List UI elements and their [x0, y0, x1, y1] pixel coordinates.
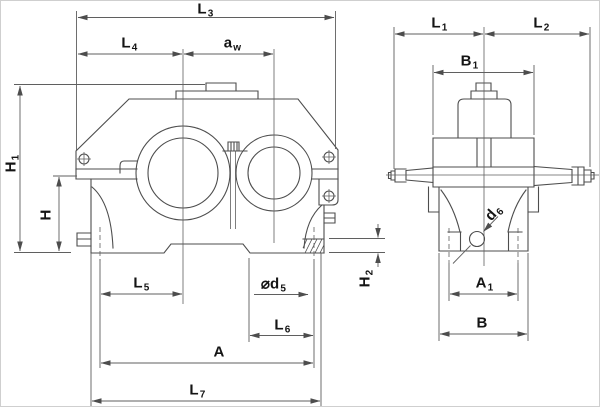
dim-label-b: B	[476, 316, 487, 331]
front-flange-bolts	[77, 150, 336, 203]
dim-label-h1: H1	[4, 156, 19, 173]
dim-label-l3: L3	[197, 2, 212, 17]
dim-label-d5: ⌀d5	[261, 277, 285, 292]
front-view	[14, 11, 385, 406]
front-bearing-bores	[136, 126, 312, 220]
dim-label-l5: L5	[133, 276, 148, 291]
front-housing-body	[76, 83, 338, 229]
side-view	[386, 27, 599, 341]
dim-label-l1: L1	[431, 16, 446, 31]
front-dimensions	[14, 11, 385, 406]
drawing-svg	[1, 1, 600, 407]
front-lower-housing	[77, 179, 338, 261]
side-centerlines	[386, 27, 599, 266]
dim-label-h2: H2	[358, 271, 373, 288]
dim-label-l4: L4	[121, 36, 136, 51]
dim-label-l2: L2	[533, 16, 548, 31]
dim-label-aw: aw	[224, 36, 241, 51]
dim-label-h: H	[39, 209, 54, 220]
side-d6-hole	[453, 217, 498, 264]
dim-label-l6: L6	[274, 318, 289, 333]
front-centerlines	[183, 49, 274, 304]
dim-label-a: A	[213, 345, 224, 360]
dim-label-b1: B1	[461, 54, 478, 69]
technical-drawing-canvas: L3 L4 aw H1 H H2 L5 ⌀d5 L6 A L7 L1 L2 B1…	[0, 0, 600, 407]
side-dimensions	[394, 27, 590, 341]
dim-label-a1: A1	[476, 276, 493, 291]
dim-label-l7: L7	[189, 383, 204, 398]
side-shafts	[389, 167, 595, 186]
